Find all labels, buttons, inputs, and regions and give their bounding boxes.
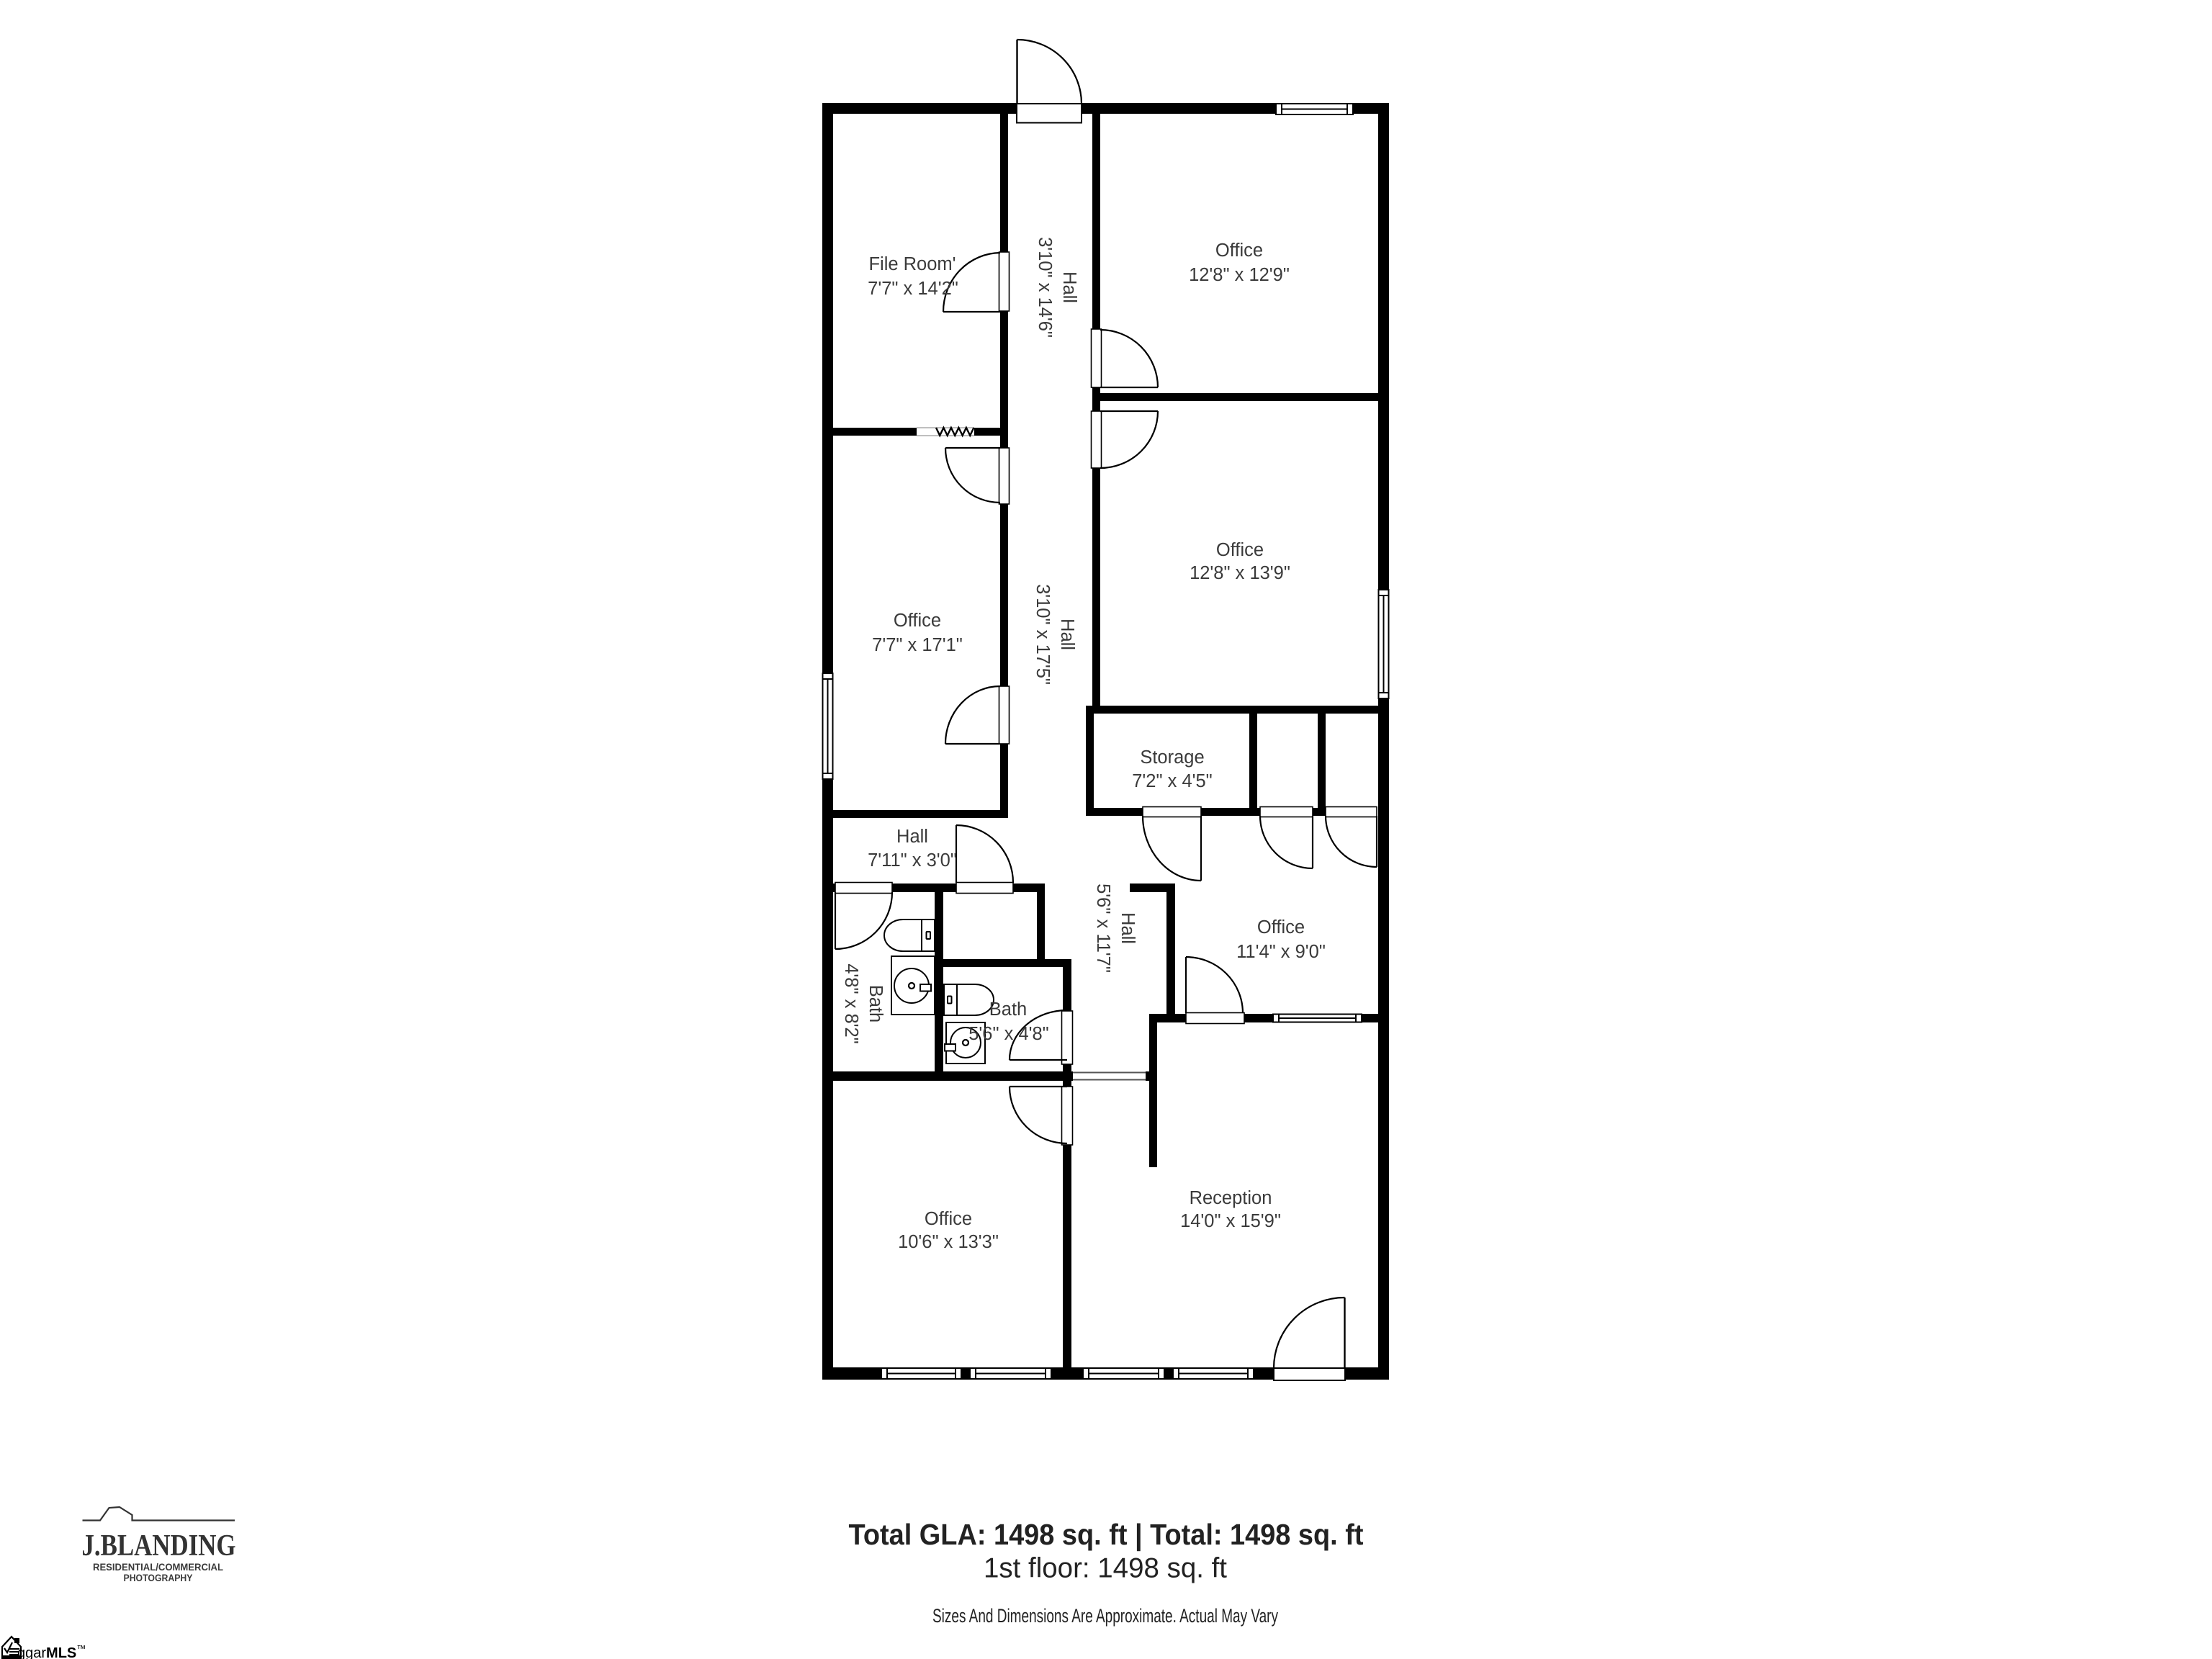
svg-text:ggarMLS™: ggarMLS™	[17, 1643, 86, 1659]
svg-text:Sizes And Dimensions Are Appro: Sizes And Dimensions Are Approximate. Ac…	[932, 1605, 1278, 1627]
svg-text:Reception: Reception	[1190, 1188, 1272, 1208]
svg-text:7'2" x 4'5": 7'2" x 4'5"	[1132, 771, 1213, 791]
svg-text:7'7" x 17'1": 7'7" x 17'1"	[872, 635, 963, 655]
svg-text:3'10" x 14'6": 3'10" x 14'6"	[1035, 237, 1055, 338]
svg-text:3'10" x 17'5": 3'10" x 17'5"	[1033, 584, 1053, 685]
svg-text:Storage: Storage	[1140, 747, 1204, 768]
svg-text:Total GLA: 1498 sq. ft | Total: Total GLA: 1498 sq. ft | Total: 1498 sq.…	[849, 1518, 1364, 1551]
svg-text:14'0" x 15'9": 14'0" x 15'9"	[1180, 1211, 1281, 1231]
svg-text:7'7" x 14'2": 7'7" x 14'2"	[868, 279, 958, 299]
svg-text:11'4" x 9'0": 11'4" x 9'0"	[1236, 942, 1326, 962]
svg-text:RESIDENTIAL/COMMERCIAL: RESIDENTIAL/COMMERCIAL	[93, 1562, 223, 1573]
svg-text:File Room': File Room'	[868, 254, 956, 274]
svg-text:5'6" x 11'7": 5'6" x 11'7"	[1093, 884, 1113, 973]
svg-text:5'6" x 4'8": 5'6" x 4'8"	[968, 1024, 1049, 1044]
svg-text:Hall: Hall	[896, 827, 928, 847]
svg-text:12'8" x 13'9": 12'8" x 13'9"	[1190, 563, 1290, 583]
svg-text:Office: Office	[1257, 917, 1305, 938]
svg-text:Office: Office	[925, 1209, 972, 1229]
svg-text:Office: Office	[1215, 240, 1263, 261]
svg-text:Office: Office	[1216, 540, 1264, 560]
svg-text:Hall: Hall	[1118, 912, 1138, 944]
svg-text:PHOTOGRAPHY: PHOTOGRAPHY	[124, 1573, 193, 1583]
svg-text:Hall: Hall	[1057, 619, 1077, 650]
svg-text:1st floor: 1498 sq. ft: 1st floor: 1498 sq. ft	[984, 1553, 1227, 1584]
svg-text:12'8" x 12'9": 12'8" x 12'9"	[1189, 265, 1290, 285]
svg-text:10'6" x 13'3": 10'6" x 13'3"	[898, 1232, 999, 1252]
svg-text:7'11" x 3'0": 7'11" x 3'0"	[868, 850, 957, 871]
svg-text:Bath: Bath	[866, 985, 886, 1022]
svg-text:4'8" x 8'2": 4'8" x 8'2"	[841, 963, 861, 1044]
svg-text:Office: Office	[894, 611, 941, 631]
svg-text:Hall: Hall	[1059, 271, 1079, 303]
svg-text:Bath: Bath	[989, 999, 1027, 1020]
svg-text:J.BLANDING: J.BLANDING	[82, 1529, 236, 1563]
